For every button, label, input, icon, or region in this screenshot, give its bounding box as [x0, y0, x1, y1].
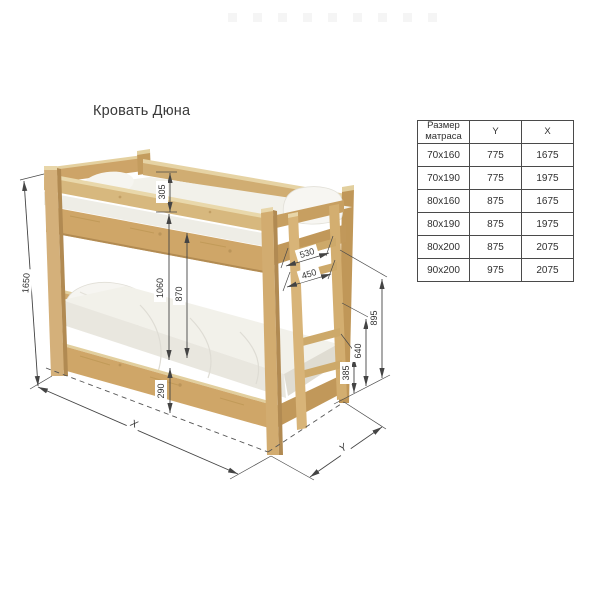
header-x: X	[522, 121, 574, 144]
axis-label-x: X	[126, 416, 142, 432]
x-cell: 2075	[522, 236, 574, 259]
table-row: 80x160 875 1675	[418, 190, 574, 213]
size-cell: 70x190	[418, 167, 470, 190]
svg-text:1060: 1060	[155, 278, 165, 298]
y-cell: 875	[470, 236, 522, 259]
table-header-row: Размер матраса Y X	[418, 121, 574, 144]
axis-label-y: Y	[335, 440, 352, 457]
header-mattress-size: Размер матраса	[418, 121, 470, 144]
table-row: 80x200 875 2075	[418, 236, 574, 259]
dim-label-ladder-inner: 450	[297, 265, 322, 283]
y-cell: 775	[470, 167, 522, 190]
size-cell: 80x190	[418, 213, 470, 236]
watermark-dots	[228, 13, 437, 22]
bunk-bed-diagram: 1650 305 1060 870 290 530	[0, 0, 600, 600]
header-y: Y	[470, 121, 522, 144]
y-cell: 775	[470, 144, 522, 167]
svg-text:305: 305	[157, 184, 167, 199]
svg-text:385: 385	[341, 365, 351, 380]
svg-text:290: 290	[156, 383, 166, 398]
y-cell: 975	[470, 259, 522, 282]
size-cell: 90x200	[418, 259, 470, 282]
x-cell: 1675	[522, 144, 574, 167]
size-cell: 80x200	[418, 236, 470, 259]
x-cell: 1975	[522, 213, 574, 236]
dim-label-lower-rung: 385	[340, 362, 352, 384]
svg-text:870: 870	[174, 286, 184, 301]
table-row: 70x190 775 1975	[418, 167, 574, 190]
x-cell: 1675	[522, 190, 574, 213]
size-cell: 80x160	[418, 190, 470, 213]
dim-label-clearance: 1060	[154, 274, 166, 302]
product-diagram-page: 1650 305 1060 870 290 530	[0, 0, 600, 600]
page-title: Кровать Дюна	[93, 103, 190, 119]
y-cell: 875	[470, 213, 522, 236]
svg-text:640: 640	[353, 343, 363, 358]
x-cell: 2075	[522, 259, 574, 282]
table-row: 70x160 775 1675	[418, 144, 574, 167]
dim-label-under-bed: 290	[155, 380, 167, 402]
x-cell: 1975	[522, 167, 574, 190]
svg-text:895: 895	[369, 310, 379, 325]
y-cell: 875	[470, 190, 522, 213]
table-row: 90x200 975 2075	[418, 259, 574, 282]
dim-label-guard-rail: 305	[156, 181, 168, 203]
bed-illustration	[44, 149, 354, 455]
mattress-size-table: Размер матраса Y X 70x160 775 1675 70x19…	[417, 120, 574, 282]
dim-label-mid-rung: 640	[352, 340, 364, 362]
size-cell: 70x160	[418, 144, 470, 167]
svg-text:1650: 1650	[20, 273, 31, 294]
dim-label-under-upper: 870	[173, 283, 185, 305]
dim-label-upper-level: 895	[368, 307, 380, 329]
table-row: 80x190 875 1975	[418, 213, 574, 236]
dim-label-total-height: 1650	[19, 269, 33, 298]
